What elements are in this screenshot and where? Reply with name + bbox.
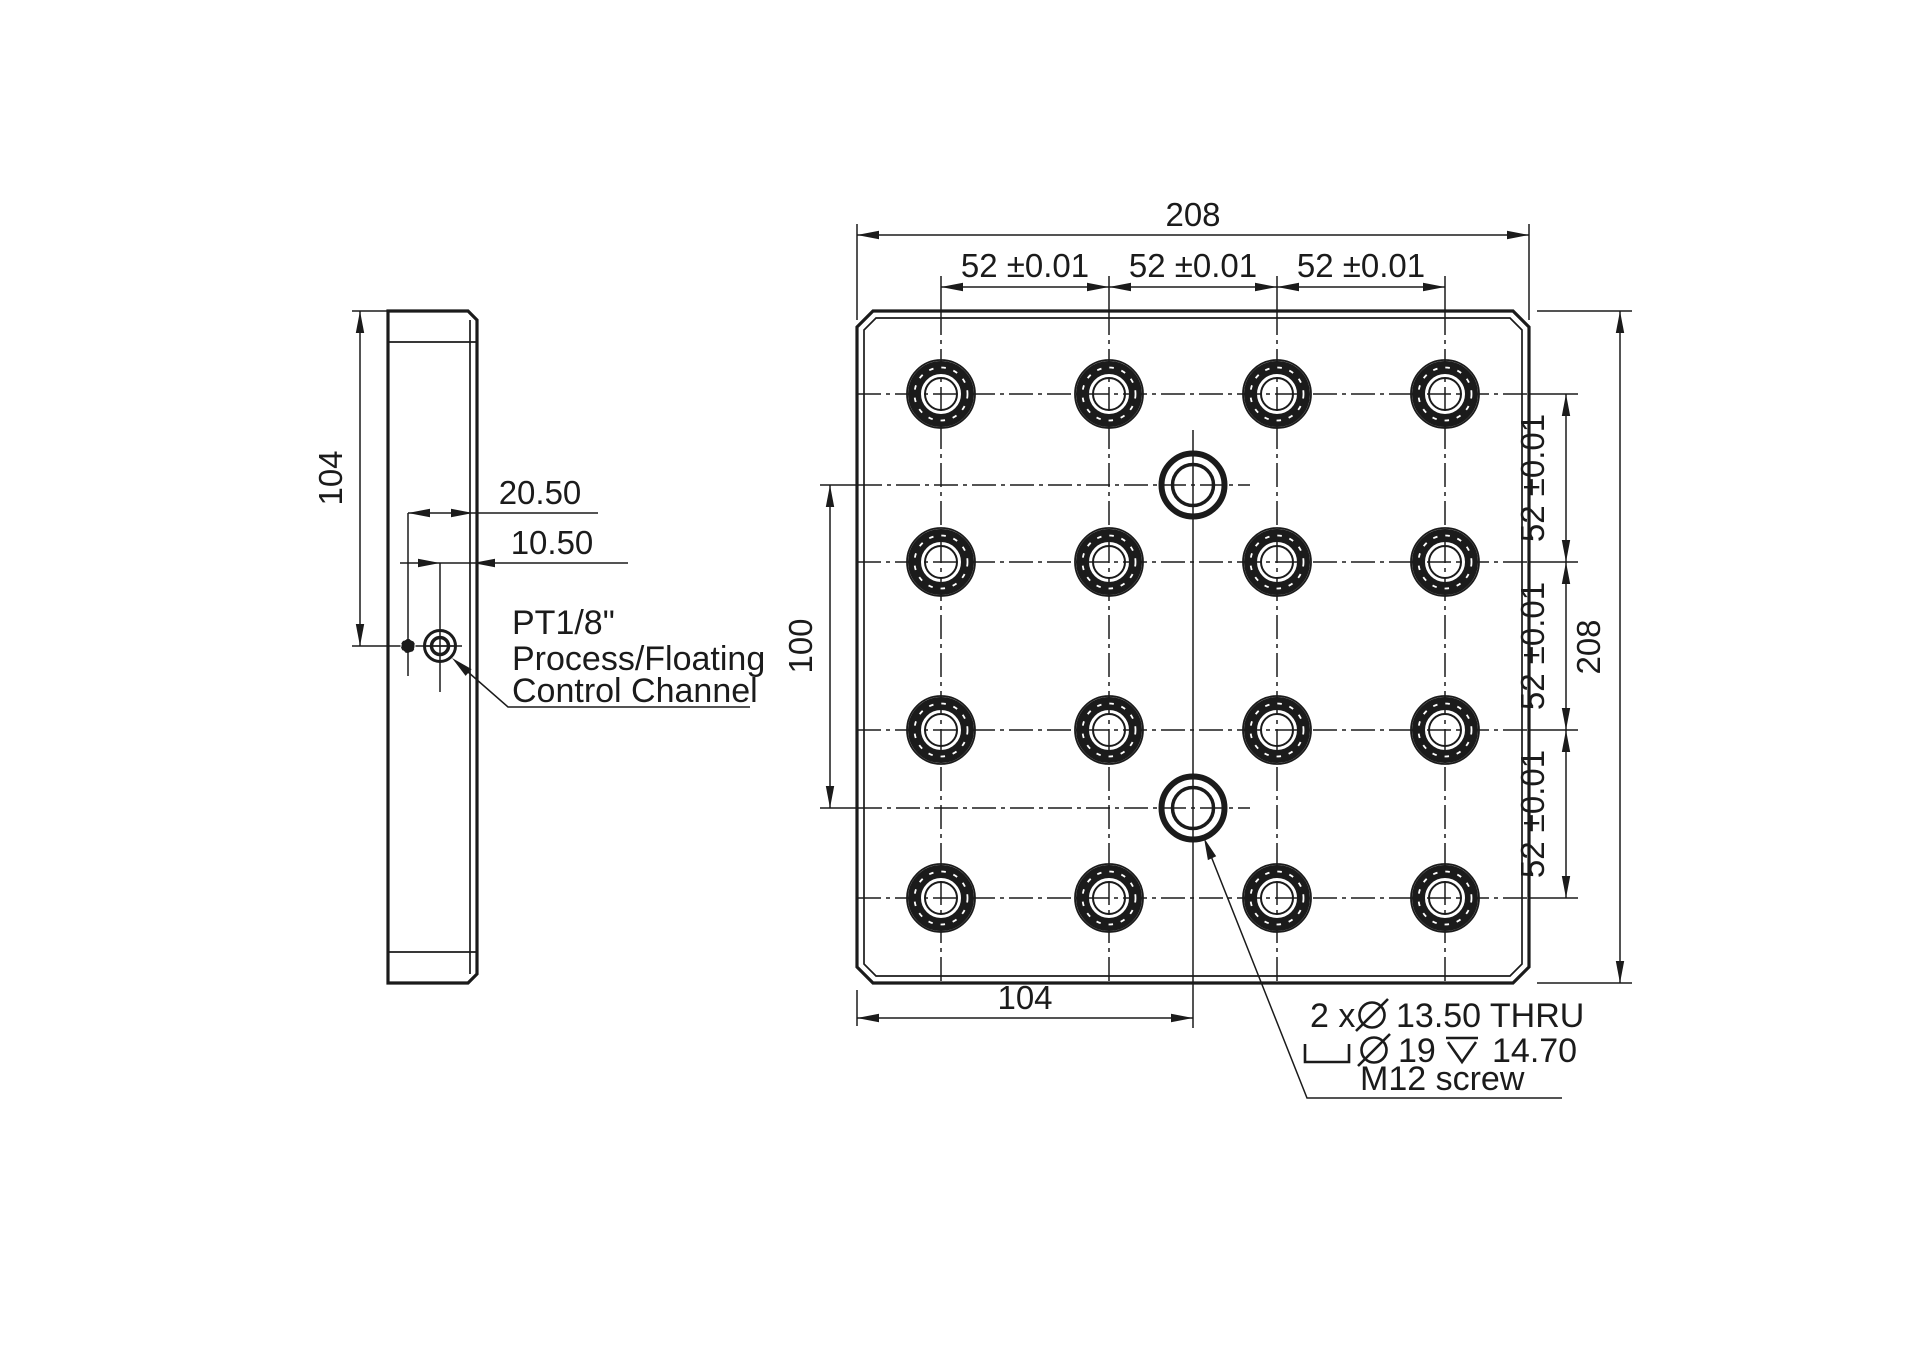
dim-label-col-pitch-2: 52 ±0.01 <box>1129 247 1257 284</box>
dim-row-pitch-chain: 52 ±0.01 52 ±0.01 52 ±0.01 <box>1514 394 1570 898</box>
note-count-prefix: 2 x <box>1310 997 1355 1035</box>
mount-hole-centerlines <box>820 485 1250 808</box>
dim-side-port-near: 10.50 <box>400 524 628 567</box>
dim-label-row-pitch-2: 52 ±0.01 <box>1514 582 1551 710</box>
dim-label-row-pitch-1: 52 ±0.01 <box>1514 414 1551 542</box>
dim-label-col-pitch-1: 52 ±0.01 <box>961 247 1089 284</box>
diameter-icon <box>1356 999 1388 1031</box>
note-thru-spec: 13.50 THRU <box>1396 997 1584 1035</box>
dim-label-100: 100 <box>782 618 819 673</box>
pt-port-note: PT1/8" Process/Floating Control Channel <box>452 604 765 710</box>
side-small-port-hole <box>401 639 415 653</box>
engineering-drawing: 104 20.50 10.50 PT1/8" Process/Floating … <box>0 0 1920 1358</box>
dim-label-col-pitch-3: 52 ±0.01 <box>1297 247 1425 284</box>
front-view: 208 52 ±0.01 52 ±0.01 52 ±0.01 208 <box>782 196 1632 1098</box>
dim-label-height-208: 208 <box>1570 619 1607 674</box>
counterbore-icon <box>1305 1044 1349 1062</box>
side-view: 104 20.50 10.50 PT1/8" Process/Floating … <box>312 311 765 983</box>
dim-label-104: 104 <box>997 979 1052 1016</box>
dim-label-1050: 10.50 <box>511 524 594 561</box>
dim-side-port-far: 20.50 <box>408 474 598 517</box>
dim-center-offset: 104 <box>857 979 1193 1026</box>
depth-icon <box>1446 1038 1478 1062</box>
dim-side-port-height: 104 <box>312 311 388 646</box>
dim-label-width-208: 208 <box>1165 196 1220 233</box>
note-screw-label: M12 screw <box>1360 1060 1525 1098</box>
dim-label-row-pitch-3: 52 ±0.01 <box>1514 750 1551 878</box>
dim-label-side-104: 104 <box>312 450 349 505</box>
dim-column-pitch-chain: 52 ±0.01 52 ±0.01 52 ±0.01 <box>941 247 1445 291</box>
dim-label-2050: 20.50 <box>499 474 582 511</box>
dim-overall-height: 208 <box>1537 311 1632 983</box>
pt-note-line1: PT1/8" <box>512 604 615 642</box>
pt-note-line3: Control Channel <box>512 672 758 710</box>
dim-port-spacing: 100 <box>782 485 834 808</box>
